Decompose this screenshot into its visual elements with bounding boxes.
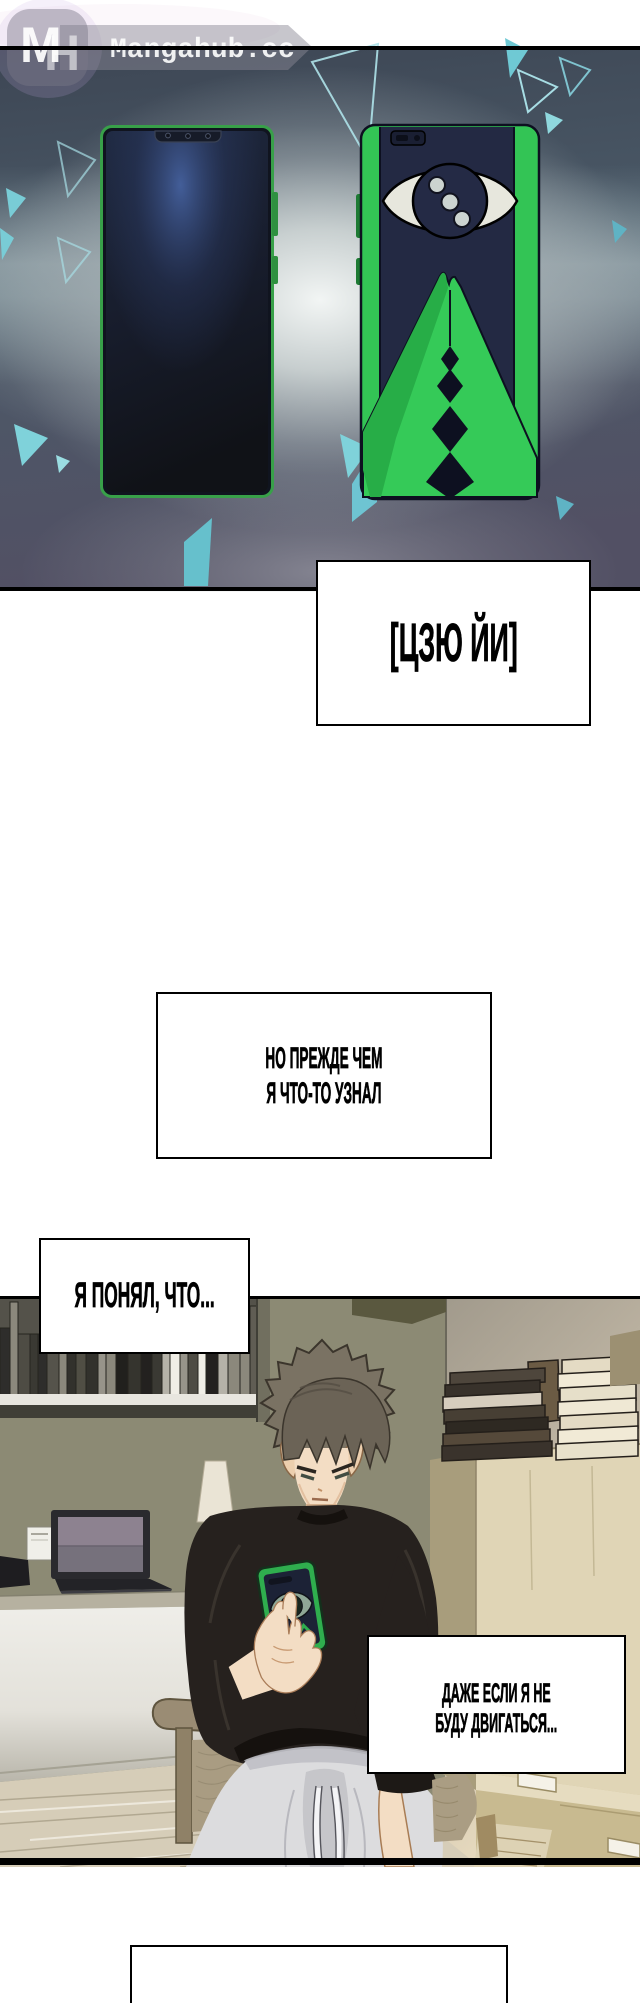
svg-text:H: H [44,25,80,81]
svg-text:Mangahub.cc: Mangahub.cc [110,35,295,66]
